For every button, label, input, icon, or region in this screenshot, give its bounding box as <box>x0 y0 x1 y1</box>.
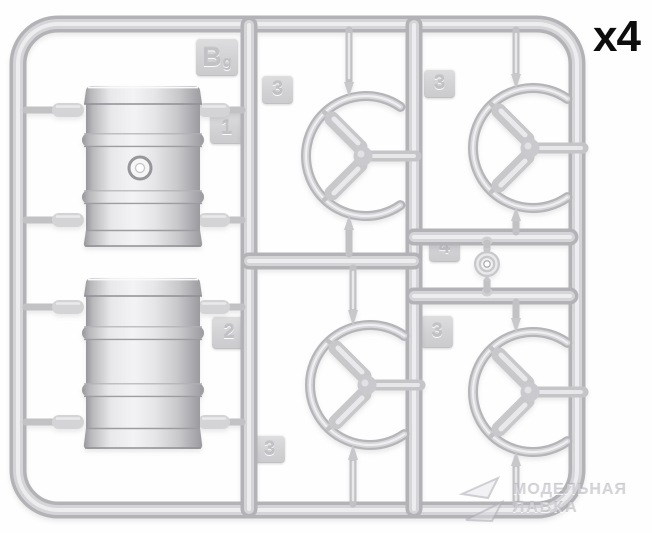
part-number-3: 3 <box>431 320 442 343</box>
sprue-outer-frame <box>18 24 577 510</box>
part-number-tab-3-top-middle: 3 <box>262 75 293 104</box>
part-number-tab-3-bottom-right: 3 <box>421 315 453 348</box>
part-number-tab-2: 2 <box>212 316 246 349</box>
bung-hole <box>129 157 151 179</box>
shop-watermark: МОДЕЛЬНАЯ ЛАВКА <box>458 476 627 522</box>
ring-part-top-right <box>473 30 583 232</box>
quantity-label: x4 <box>593 12 640 62</box>
part-number-2: 2 <box>223 321 234 344</box>
part-number-tab-3-bottom-middle: 3 <box>254 435 285 463</box>
part-number-tab-3-top-right: 3 <box>424 69 455 98</box>
part-number-4: 4 <box>439 236 450 259</box>
part-number-3: 3 <box>272 78 283 101</box>
drum-gates <box>26 103 242 429</box>
sprue-letter-tab: B g <box>196 38 238 76</box>
sprue-letter-sub: g <box>223 55 232 70</box>
small-disc-part-4 <box>478 237 497 297</box>
fuel-drum-part-1 <box>82 86 204 247</box>
ring-part-bottom-middle <box>310 268 420 504</box>
part-number-tab-4: 4 <box>429 233 460 262</box>
part-number-3: 3 <box>264 438 275 461</box>
fuel-drum-part-2 <box>82 278 204 449</box>
ring-part-bottom-right <box>473 302 583 504</box>
sprue-letter: B <box>202 44 222 71</box>
part-number-tab-1: 1 <box>210 112 243 144</box>
part-number-3: 3 <box>434 72 445 95</box>
shop-logo-icon <box>458 476 506 522</box>
watermark-line-1: МОДЕЛЬНАЯ <box>513 481 627 499</box>
watermark-line-2: ЛАВКА <box>513 499 627 517</box>
part-number-1: 1 <box>221 117 232 140</box>
sprue-frame-drawing <box>0 0 652 533</box>
ring-part-top-middle <box>306 30 416 254</box>
sprue-photo: B g 1 2 3 3 4 3 3 <box>0 0 652 533</box>
